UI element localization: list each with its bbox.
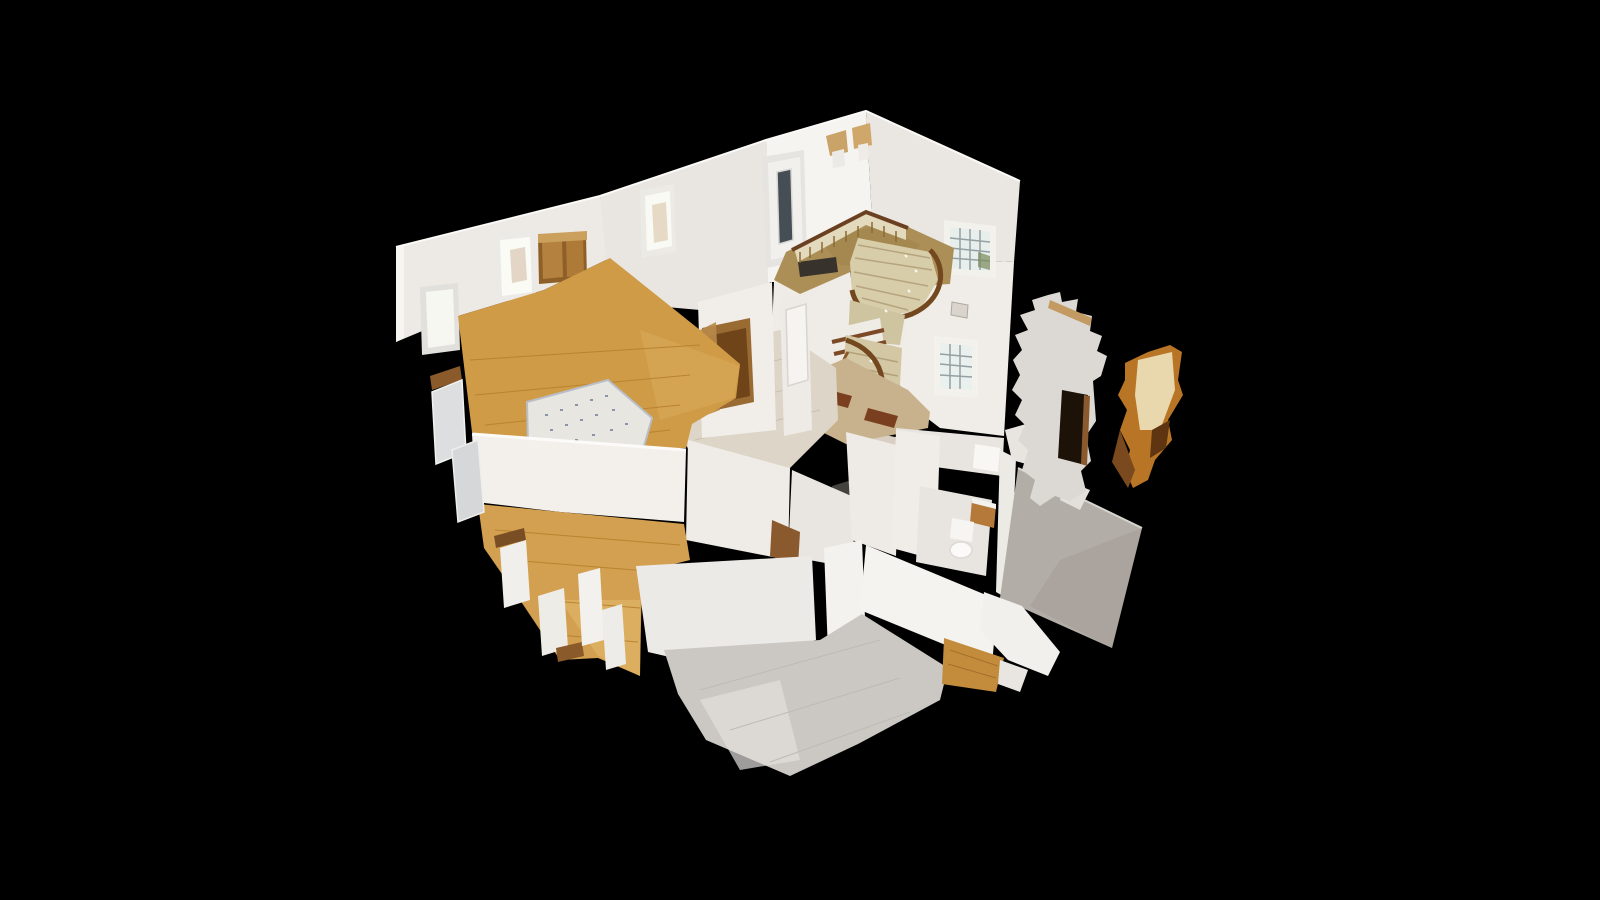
toilet-bowl [950,542,972,558]
window-left-glass [426,289,455,348]
dollhouse-3d-view[interactable] [0,0,1600,900]
bedroom2-radiator-2 [602,604,626,670]
wood-door-panel-right [566,238,584,277]
cut-radiator-1 [500,540,530,608]
wood-door-panel-left [542,240,563,279]
wall-cut-cap-left [396,244,404,342]
cut-radiator-2 [538,588,568,656]
hall-white-door [786,304,808,386]
bathroom-window-bright [973,444,1000,472]
toilet-room-wall [846,432,900,556]
bedroom2-radiator-1 [578,568,604,646]
toilet-tank [950,518,974,542]
tour-viewer [0,0,1600,900]
sconce-pot-1 [832,149,845,168]
hall-window-figure [652,202,668,243]
cut-window-frame-2 [452,440,484,522]
sconce-pot-2 [858,143,869,161]
front-door-glass-slot [777,169,793,244]
picture-frame-stairwell [951,302,968,318]
window-back-warm-hint [510,247,527,283]
